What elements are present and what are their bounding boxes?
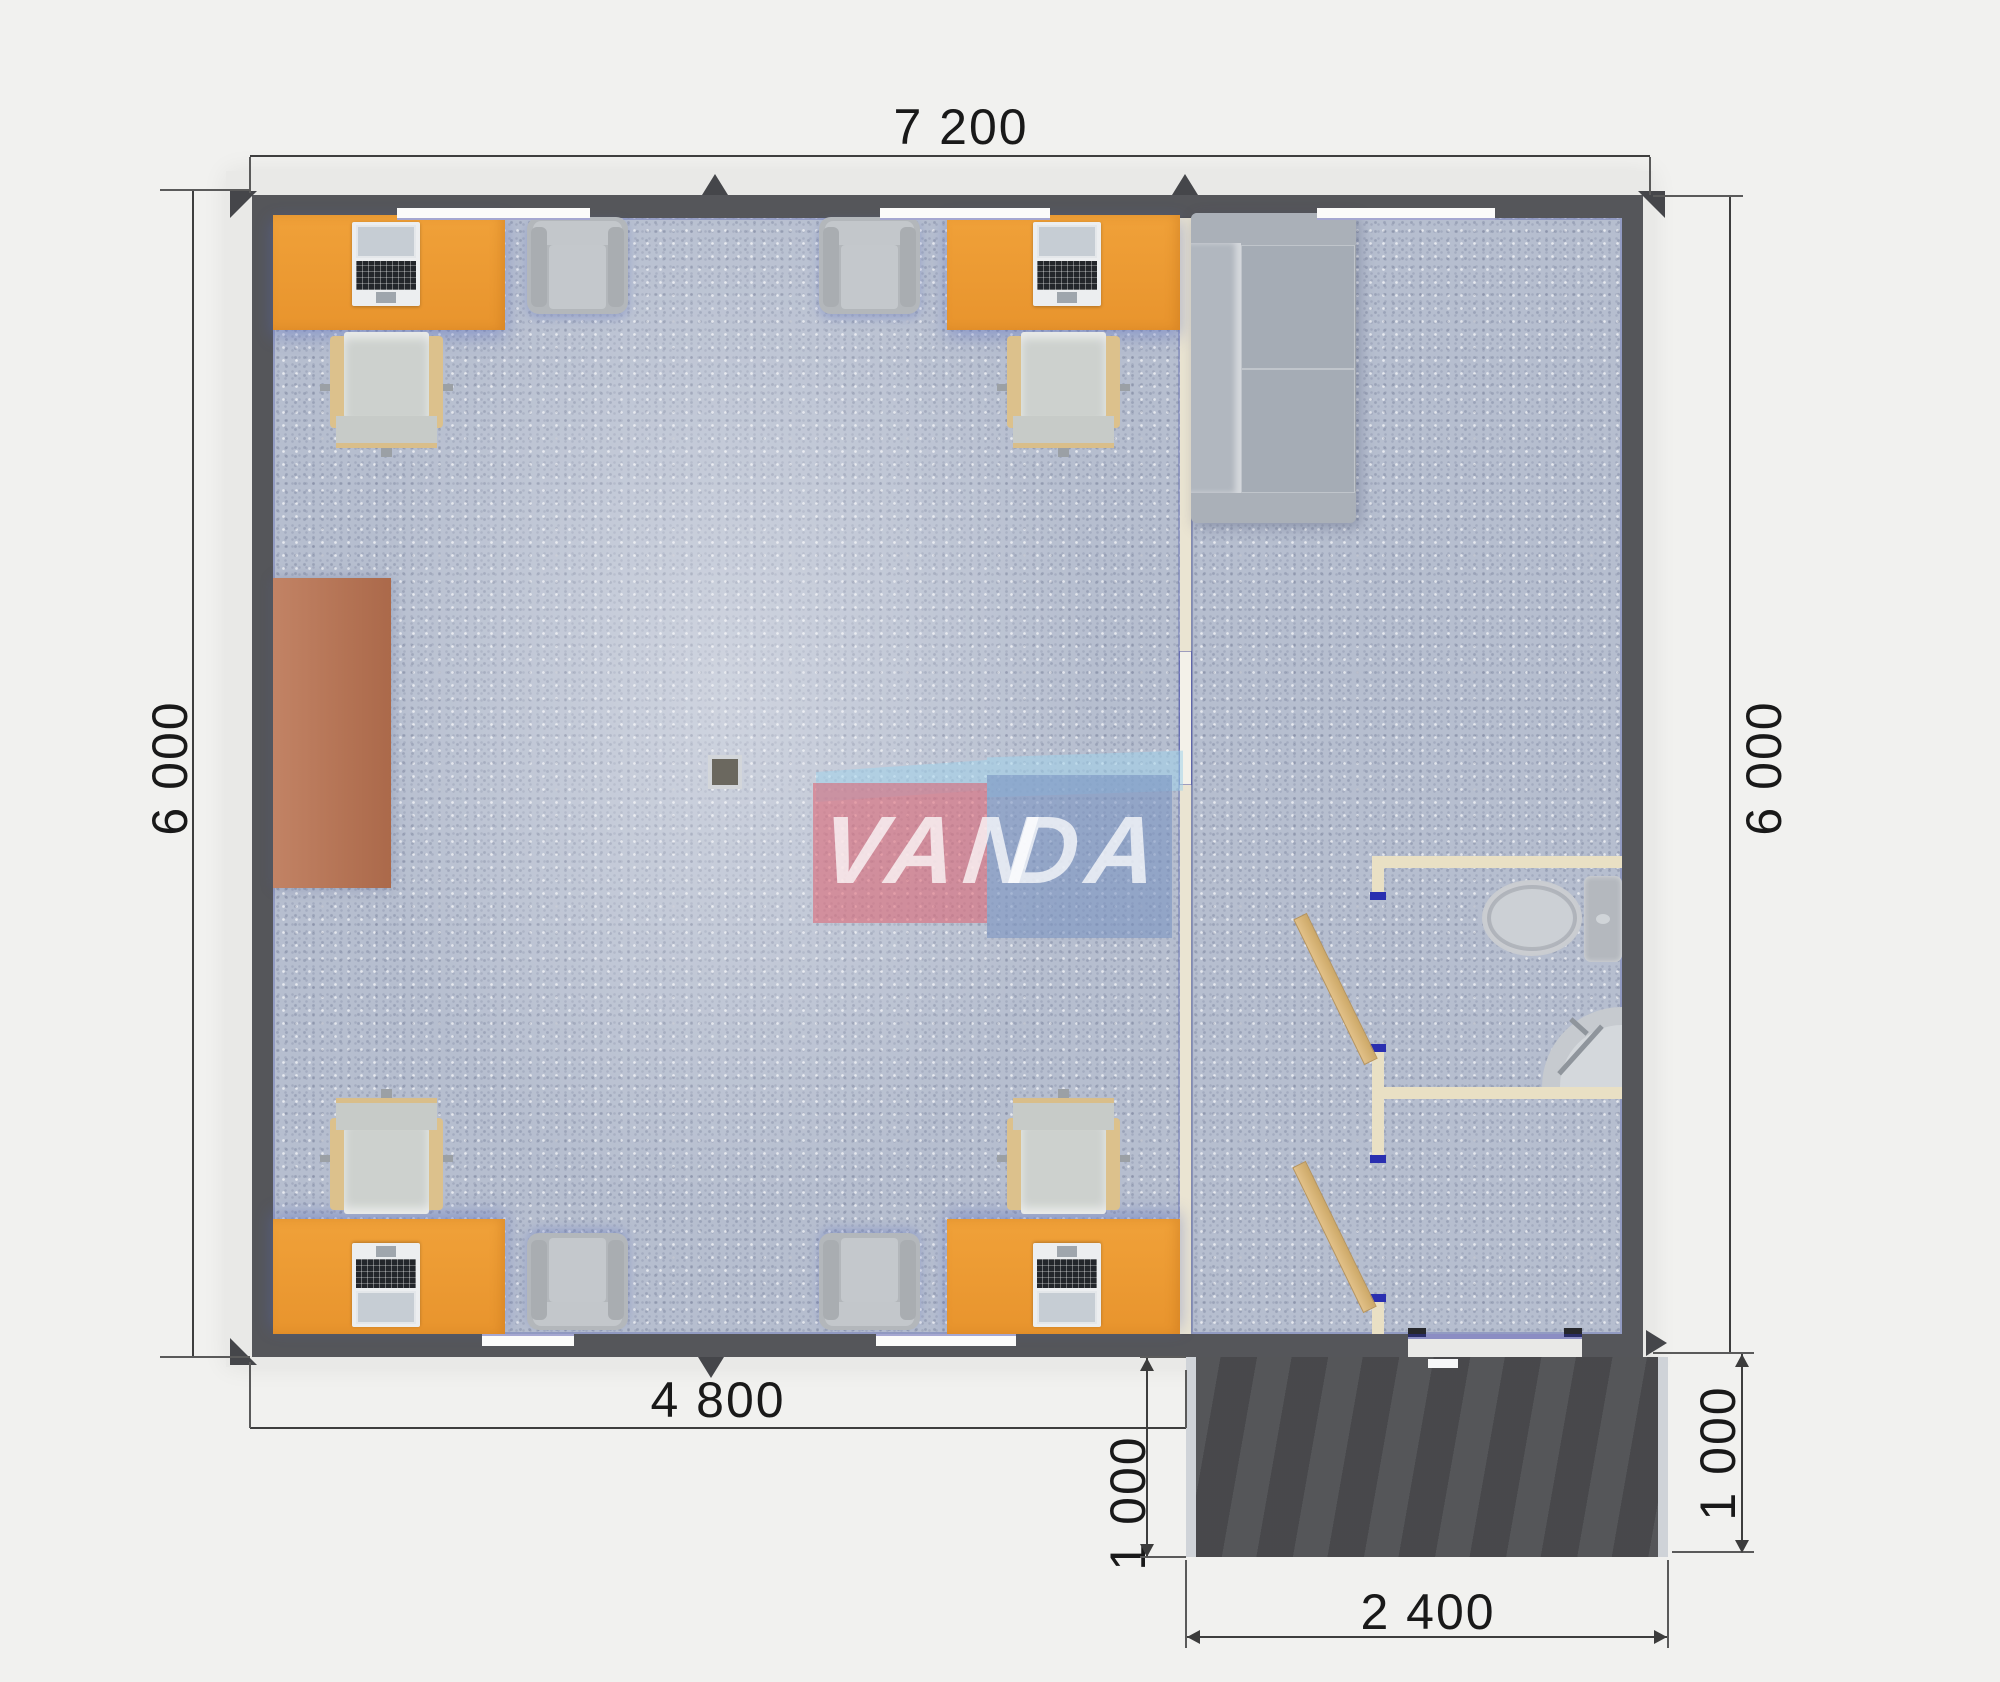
- chair-caster: [320, 384, 330, 391]
- sofa-armrest: [1191, 491, 1356, 523]
- window-bottom-2: [876, 1334, 1016, 1346]
- office-chair-bottom-left: [330, 1098, 443, 1216]
- toilet-bowl: [1482, 880, 1582, 956]
- dim-label-bottom-width: 4 800: [618, 1374, 818, 1426]
- chair-seat: [1013, 416, 1114, 448]
- armchair-top-2: [819, 217, 920, 314]
- office-chair-top-left: [330, 330, 443, 448]
- sofa-backrest: [1191, 243, 1241, 493]
- desk-top-left: [273, 215, 505, 330]
- vestibule-door-frame: [1370, 1155, 1386, 1163]
- armchair-armrest: [900, 227, 916, 307]
- office-chair-top-right: [1007, 330, 1120, 448]
- chair-caster: [997, 384, 1007, 391]
- armchair-bottom-1: [527, 1233, 628, 1330]
- chair-caster: [1120, 384, 1130, 391]
- chair-caster: [381, 1089, 392, 1098]
- watermark-logo-text: VAN DA: [816, 790, 1181, 912]
- arrowhead-2400-left: [1187, 1630, 1200, 1644]
- bathroom-wall-left-upper: [1372, 856, 1384, 896]
- armchair-armrest: [823, 227, 839, 307]
- armchair-armrest: [531, 1240, 547, 1320]
- laptop-keyboard: [356, 261, 416, 290]
- chair-caster: [443, 1155, 453, 1162]
- window-bottom-1: [482, 1334, 574, 1346]
- porch-edge-left: [1186, 1357, 1196, 1557]
- chair-caster: [1120, 1155, 1130, 1162]
- arrowhead-porch-right-bottom: [1735, 1540, 1749, 1553]
- module-tick-top-2: [1172, 174, 1198, 195]
- wall-bottom-right-segment: [1582, 1334, 1643, 1357]
- dim-witness-top-left: [249, 157, 251, 193]
- chair-backrest: [1021, 1128, 1106, 1214]
- bathroom-wall-top: [1372, 856, 1622, 868]
- laptop-top-right: [1033, 222, 1101, 306]
- sofa-cushion: [1241, 369, 1355, 493]
- toilet-flush-button: [1596, 914, 1610, 924]
- laptop-screen: [1037, 1291, 1097, 1324]
- dim-label-right-height: 6 000: [1738, 668, 1790, 868]
- wall-bottom-left-segment: [252, 1334, 1408, 1357]
- dim-label-porch-width: 2 400: [1328, 1586, 1528, 1638]
- dim-witness-4800-right: [1185, 1370, 1187, 1428]
- toilet-tank: [1584, 876, 1622, 962]
- dim-line-porch-left-1000: [1146, 1357, 1148, 1557]
- armchair-armrest: [608, 227, 624, 307]
- laptop-screen: [1037, 225, 1097, 258]
- dim-witness-top-right: [1649, 157, 1651, 195]
- laptop-screen: [356, 1291, 416, 1324]
- dim-witness-right-top: [1653, 195, 1743, 197]
- module-tick-top-1: [702, 174, 728, 195]
- laptop-keyboard: [356, 1259, 416, 1288]
- desk-bottom-left: [273, 1219, 505, 1334]
- arrowhead-2400-right: [1654, 1630, 1667, 1644]
- dim-label-porch-depth-right: 1 000: [1692, 1353, 1744, 1553]
- dim-line-right: [1729, 196, 1731, 1354]
- dim-line-porch-2400: [1186, 1636, 1668, 1638]
- desk-top-right: [947, 215, 1180, 330]
- chair-caster: [443, 384, 453, 391]
- desk-bottom-right: [947, 1219, 1180, 1334]
- laptop-bottom-right: [1033, 1243, 1101, 1327]
- armchair-armrest: [608, 1240, 624, 1320]
- bathroom-wall-bottom: [1372, 1087, 1622, 1099]
- chair-seat: [336, 1098, 437, 1130]
- chair-caster: [1058, 1089, 1069, 1098]
- laptop-touchpad: [1057, 292, 1077, 303]
- dim-line-bottom-4800: [250, 1427, 1186, 1429]
- armchair-armrest: [900, 1240, 916, 1320]
- window-top-2: [880, 208, 1050, 220]
- entry-threshold-line: [1408, 1334, 1582, 1339]
- office-chair-bottom-right: [1007, 1098, 1120, 1216]
- laptop-keyboard: [1037, 261, 1097, 290]
- chair-caster: [997, 1155, 1007, 1162]
- dim-line-top: [250, 155, 1650, 157]
- chair-backrest: [344, 332, 429, 418]
- chair-caster: [1058, 448, 1069, 457]
- bathroom-door-frame: [1370, 892, 1386, 900]
- floor-hatch: [708, 755, 742, 789]
- dim-label-top-width: 7 200: [861, 101, 1061, 153]
- porch-door-threshold: [1428, 1359, 1458, 1368]
- laptop-keyboard: [1037, 1259, 1097, 1288]
- armchair-seat: [841, 1238, 898, 1302]
- sofa: [1191, 213, 1356, 523]
- wall-right: [1622, 195, 1643, 1357]
- watermark-text-left: VAN: [816, 796, 1006, 906]
- porch-deck: [1186, 1357, 1668, 1557]
- armchair-top-1: [527, 217, 628, 314]
- sofa-cushion: [1241, 245, 1355, 369]
- sideboard-cabinet: [273, 578, 391, 888]
- armchair-seat: [549, 1238, 606, 1302]
- arrowhead-porch-right-top: [1735, 1354, 1749, 1367]
- laptop-touchpad: [376, 1246, 396, 1257]
- arrowhead-porch-left-top: [1140, 1358, 1154, 1371]
- dim-label-left-height: 6 000: [144, 668, 196, 868]
- laptop-touchpad: [376, 292, 396, 303]
- chair-backrest: [1021, 332, 1106, 418]
- window-top-1: [397, 208, 590, 220]
- dim-witness-left-bottom: [160, 1356, 250, 1358]
- dim-line-porch-right-1000: [1741, 1353, 1743, 1553]
- laptop-touchpad: [1057, 1246, 1077, 1257]
- porch-edge-right: [1658, 1357, 1668, 1557]
- armchair-bottom-2: [819, 1233, 920, 1330]
- floor-plan-canvas: 7 200 6 000 6 000 4 800 1 000 1 000 2 40…: [0, 0, 2000, 1682]
- dim-line-left: [192, 190, 194, 1357]
- wall-left: [252, 195, 273, 1357]
- arrowhead-porch-left-bottom: [1140, 1544, 1154, 1557]
- armchair-armrest: [823, 1240, 839, 1320]
- armchair-armrest: [531, 227, 547, 307]
- laptop-top-left: [352, 222, 420, 306]
- armchair-seat: [549, 245, 606, 309]
- dim-witness-2400-right: [1667, 1560, 1669, 1648]
- armchair-seat: [841, 245, 898, 309]
- chair-seat: [1013, 1098, 1114, 1130]
- dim-witness-4800-left: [249, 1362, 251, 1428]
- watermark-text-right: DA: [994, 796, 1180, 906]
- chair-seat: [336, 416, 437, 448]
- chair-caster: [381, 448, 392, 457]
- vestibule-wall-left-upper: [1372, 1099, 1384, 1159]
- laptop-bottom-left: [352, 1243, 420, 1327]
- dim-witness-left-top: [160, 189, 250, 191]
- chair-backrest: [344, 1128, 429, 1214]
- laptop-screen: [356, 225, 416, 258]
- chair-caster: [320, 1155, 330, 1162]
- window-top-3: [1317, 208, 1495, 220]
